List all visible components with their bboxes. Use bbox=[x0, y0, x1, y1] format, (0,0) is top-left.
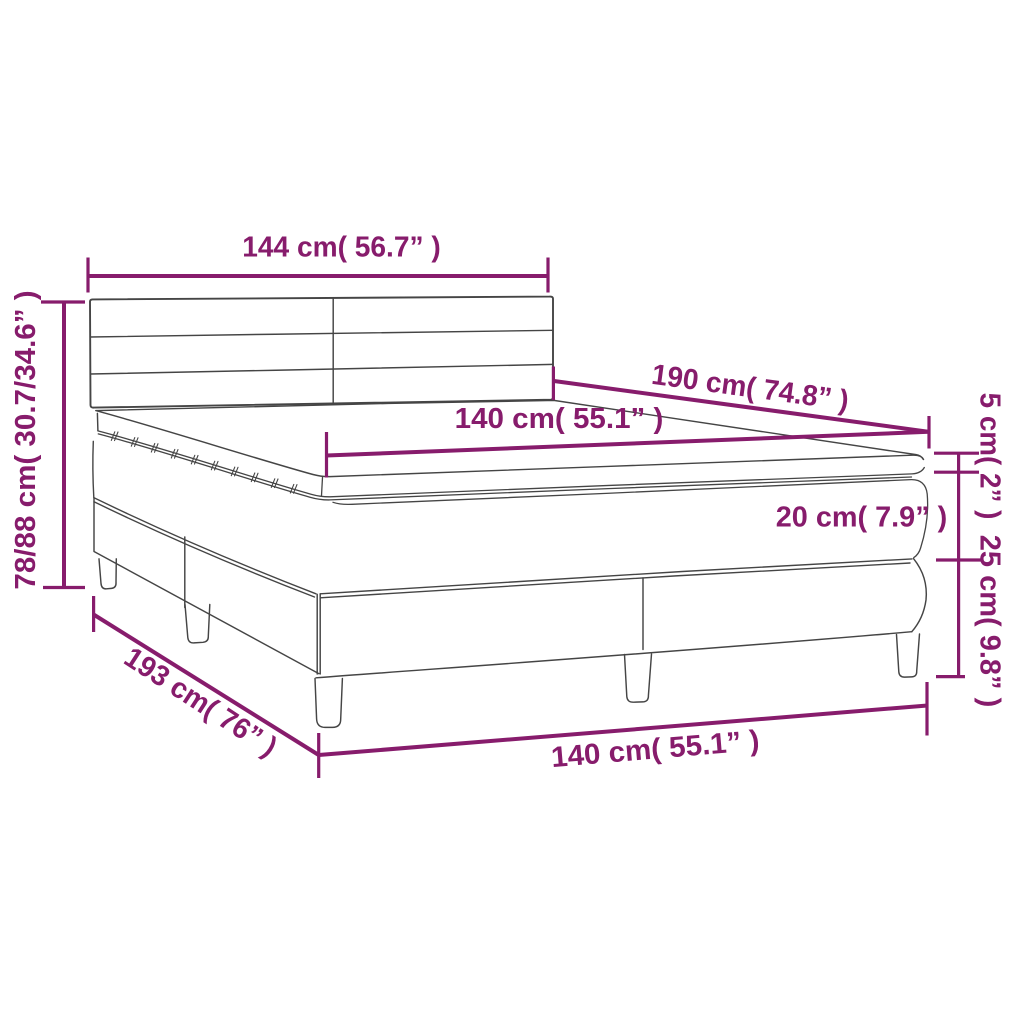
svg-text:5 cm( 2” ): 5 cm( 2” ) bbox=[973, 393, 1006, 520]
svg-text:25 cm( 9.8” ): 25 cm( 9.8” ) bbox=[974, 535, 1006, 707]
svg-text:20 cm( 7.9” ): 20 cm( 7.9” ) bbox=[776, 502, 947, 534]
svg-text:140 cm( 55.1” ): 140 cm( 55.1” ) bbox=[455, 402, 664, 435]
svg-text:144 cm( 56.7” ): 144 cm( 56.7” ) bbox=[242, 231, 440, 263]
svg-text:78/88 cm( 30.7/34.6” ): 78/88 cm( 30.7/34.6” ) bbox=[9, 290, 42, 589]
svg-text:193 cm( 76” ): 193 cm( 76” ) bbox=[118, 641, 282, 764]
